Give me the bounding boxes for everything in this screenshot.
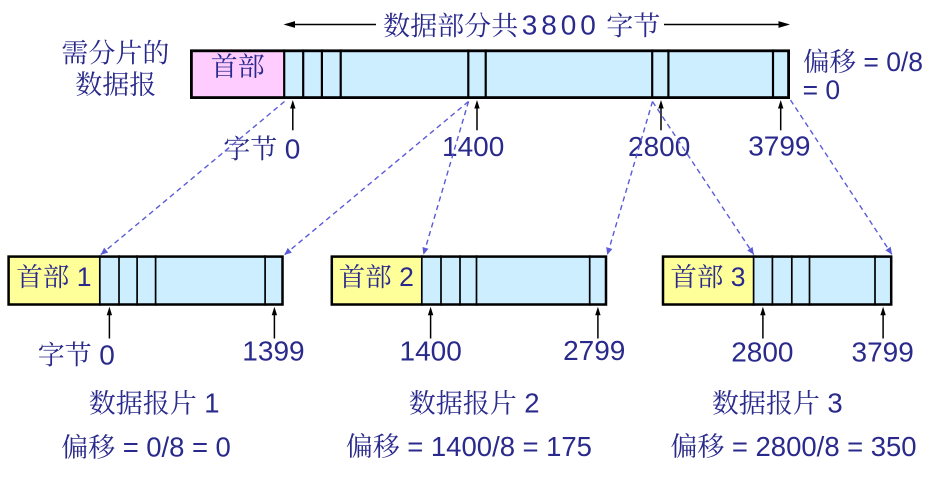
svg-text:=: =: [863, 47, 878, 77]
svg-text:=: =: [847, 431, 863, 462]
svg-text:0: 0: [825, 75, 840, 105]
svg-text:=: =: [803, 75, 818, 105]
svg-text:1: 1: [204, 388, 219, 419]
svg-text:3799: 3799: [748, 131, 810, 162]
svg-text:=: =: [523, 431, 539, 462]
svg-text:1400/8: 1400/8: [431, 431, 515, 462]
svg-text:175: 175: [546, 431, 592, 462]
svg-text:1400: 1400: [400, 336, 462, 367]
svg-text:2: 2: [399, 262, 414, 292]
svg-text:350: 350: [871, 431, 917, 462]
svg-text:0: 0: [99, 339, 115, 370]
svg-text:0/8: 0/8: [886, 47, 923, 77]
svg-text:=: =: [123, 432, 139, 463]
svg-text:2799: 2799: [563, 335, 625, 366]
svg-text:0: 0: [216, 432, 231, 463]
svg-text:=: =: [407, 431, 423, 462]
svg-text:0: 0: [285, 133, 301, 164]
svg-text:3: 3: [827, 388, 842, 419]
svg-text:2800: 2800: [628, 131, 690, 162]
svg-text:1: 1: [77, 262, 92, 292]
svg-text:3: 3: [731, 262, 746, 292]
svg-text:3800: 3800: [522, 10, 600, 41]
svg-text:1399: 1399: [242, 336, 304, 367]
svg-text:0/8: 0/8: [146, 432, 184, 463]
svg-text:3799: 3799: [852, 337, 914, 368]
svg-text:2800/8: 2800/8: [756, 431, 840, 462]
svg-text:2800: 2800: [731, 337, 793, 368]
svg-text:=: =: [192, 432, 208, 463]
svg-text:2: 2: [524, 388, 539, 419]
svg-text:=: =: [732, 431, 748, 462]
